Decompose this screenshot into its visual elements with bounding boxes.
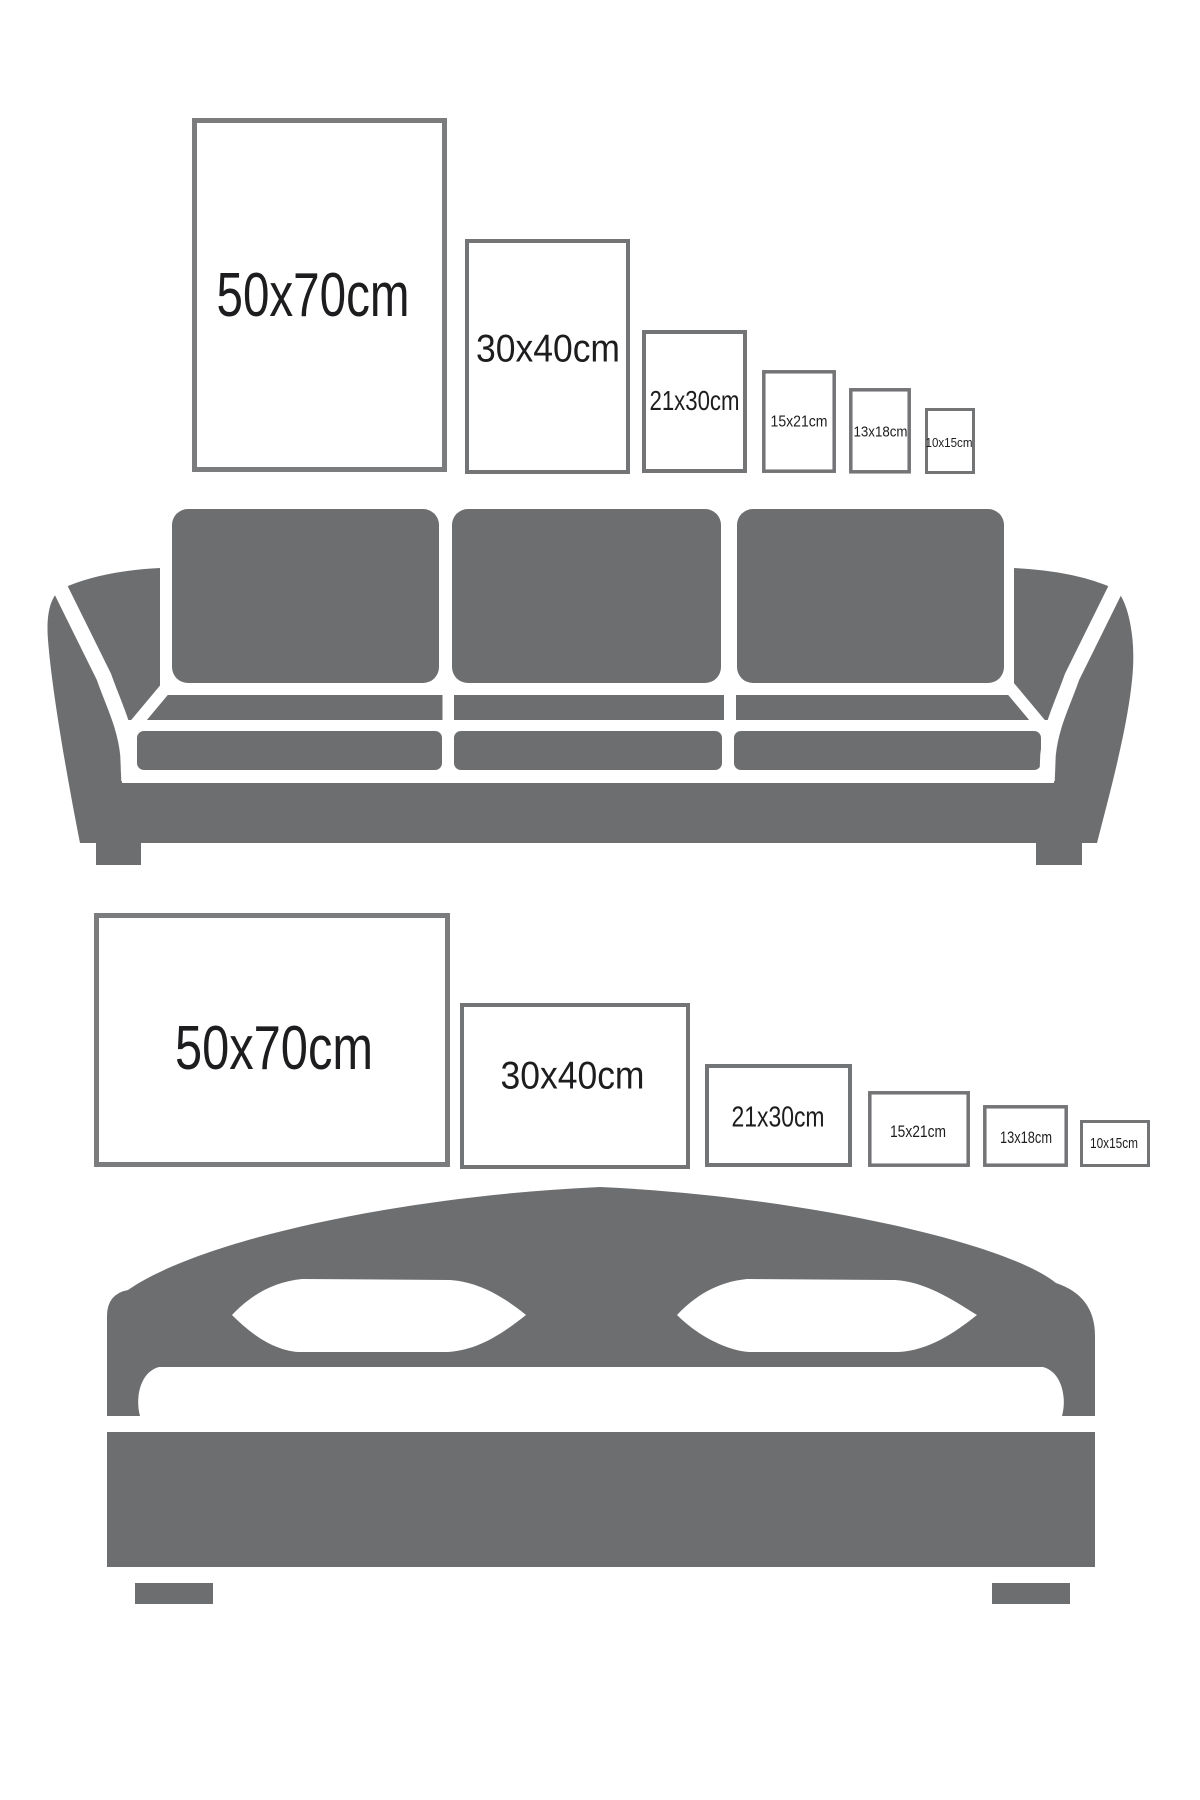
svg-text:21x30cm: 21x30cm	[650, 385, 740, 416]
svg-text:13x18cm: 13x18cm	[854, 424, 908, 441]
svg-text:50x70cm: 50x70cm	[217, 261, 410, 330]
svg-text:50x70cm: 50x70cm	[175, 1014, 373, 1083]
svg-text:15x21cm: 15x21cm	[771, 414, 828, 431]
svg-text:30x40cm: 30x40cm	[476, 328, 620, 371]
svg-text:10x15cm: 10x15cm	[1090, 1135, 1138, 1152]
svg-text:30x40cm: 30x40cm	[501, 1055, 645, 1098]
svg-text:10x15cm: 10x15cm	[926, 435, 973, 450]
svg-text:13x18cm: 13x18cm	[1000, 1128, 1052, 1147]
svg-text:15x21cm: 15x21cm	[890, 1122, 946, 1141]
svg-text:21x30cm: 21x30cm	[732, 1102, 825, 1134]
